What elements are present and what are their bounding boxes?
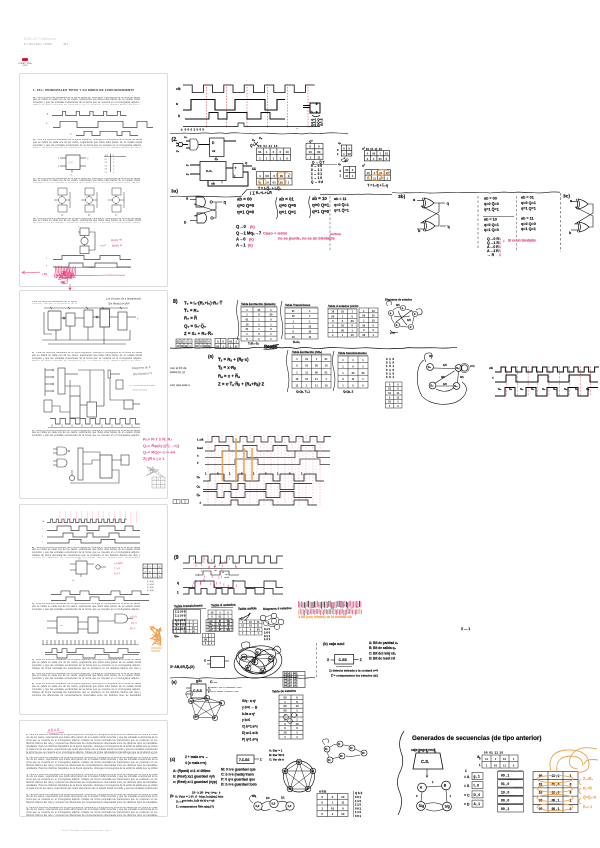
svg-text:01: 01: [503, 757, 507, 761]
svg-text:00: 00: [280, 174, 284, 178]
svg-text:0: 0: [222, 339, 224, 343]
svg-text:q=1 Q̅=1: q=1 Q̅=1: [484, 208, 499, 212]
svg-text:0: 0: [416, 794, 418, 798]
svg-text:T: T: [235, 166, 237, 170]
svg-text:1: 1: [246, 308, 248, 312]
svg-text:0/0: 0/0: [441, 375, 445, 379]
svg-text:10: 10: [249, 621, 252, 624]
svg-text:1: 1: [372, 333, 374, 337]
svg-text:C: Bit del reloj ck₁: C: Bit del reloj ck₁: [369, 651, 397, 655]
svg-text:0: 0: [309, 145, 311, 149]
svg-text:1: 1: [342, 314, 344, 318]
svg-text:1: 1: [242, 628, 244, 631]
svg-text:0: 0: [289, 472, 291, 476]
svg-text:3a): 3a): [171, 189, 178, 195]
svg-text:T̅ₐ = Rₐ + (R̅ᵦ·x): T̅ₐ = Rₐ + (R̅ᵦ·x): [217, 357, 249, 362]
svg-text:1: 1: [205, 634, 207, 638]
svg-text:10: 10: [292, 314, 295, 318]
svg-text:b: b: [178, 114, 180, 118]
svg-text:0: 0: [279, 150, 281, 154]
svg-text:10: 10: [325, 384, 328, 388]
svg-text:a: a: [413, 197, 416, 202]
svg-text:x₁: x₁: [252, 138, 256, 142]
svg-text:11: 11: [257, 625, 260, 628]
svg-text:S₀: S₀: [428, 365, 432, 369]
svg-text:00 , 1: 00 , 1: [501, 807, 509, 811]
svg-text:1: 1: [246, 332, 248, 336]
svg-text:→ R: → R: [487, 253, 495, 257]
svg-text:1/1: 1/1: [281, 796, 285, 800]
svg-text:0: 0: [342, 377, 344, 381]
svg-text:10: 10: [331, 310, 334, 314]
svg-text:Q̅=Q̅₀·R: Q̅=Q̅₀·R: [582, 796, 596, 800]
svg-text:M: 0 nºs guardael que: M: 0 nºs guardael que: [221, 768, 256, 772]
svg-text:S₃: S₃: [454, 384, 458, 388]
svg-text:a: a: [570, 199, 573, 203]
svg-text:0: 0: [241, 472, 243, 476]
svg-text:1: 1: [309, 309, 311, 313]
svg-text:S₂: S₂: [520, 387, 524, 391]
svg-text:1: 1: [386, 176, 388, 180]
svg-text:1: 1: [259, 174, 261, 178]
svg-text:11: 11: [503, 764, 506, 768]
svg-text:10: 10: [211, 611, 214, 614]
svg-text:1: 1: [479, 763, 481, 767]
svg-text:00: 00: [284, 704, 287, 708]
svg-text:1: 1: [259, 156, 261, 160]
svg-text:1/0: 1/0: [443, 382, 447, 386]
svg-text:1: 1: [362, 377, 364, 381]
svg-text:1: 1: [316, 357, 318, 361]
svg-text:1: 1: [277, 472, 279, 476]
svg-text:01: 01: [305, 377, 308, 381]
svg-text:1: 1: [219, 611, 221, 614]
svg-text:Σ: comparamos Rén q≥q₁(?): Σ: comparamos Rén q≥q₁(?): [176, 805, 214, 809]
svg-text:A→1: A→1: [236, 243, 246, 248]
svg-text:01: 01: [494, 764, 498, 768]
svg-text:10: 10: [296, 704, 299, 708]
svg-text:1: 1: [343, 152, 345, 156]
svg-text:0 1 0: 0 1 0: [386, 361, 394, 365]
svg-text:11: 11: [352, 377, 355, 381]
svg-text:01: 01: [196, 341, 199, 344]
svg-text:1: 1: [258, 337, 260, 341]
svg-text:1: 1: [325, 377, 327, 381]
svg-text:1 1 0: 1 1 0: [355, 803, 361, 807]
svg-text:1: 1: [205, 472, 207, 476]
svg-text:0 0 1: 0 0 1: [386, 375, 394, 379]
svg-text:1: 1: [309, 314, 311, 318]
svg-text:01: 01: [305, 364, 308, 368]
svg-text:Q → d d: Q → d d: [311, 180, 323, 184]
svg-text:1: 1: [250, 632, 252, 635]
svg-text:0: 0: [397, 404, 399, 408]
svg-text:T = I₀·q̅ + I̅₀·q: T = I₀·q̅ + I̅₀·q: [367, 184, 388, 188]
svg-text:1: 1: [352, 174, 354, 178]
svg-text:4 (o mala nºs): 4 (o mala nºs): [185, 761, 206, 765]
svg-text:11: 11: [397, 391, 400, 395]
svg-text:11: 11: [308, 335, 311, 339]
svg-text:0: 0: [397, 387, 399, 391]
svg-text:a: a: [176, 102, 178, 106]
svg-text:q=0 Q=0: q=0 Q=0: [237, 203, 255, 208]
svg-text:vertical.: vertical.: [330, 232, 342, 236]
svg-text:x=0: x=0: [390, 331, 395, 335]
svg-text:a bit (con retraso) de la entr: a bit (con retraso) de la entrada clk: [299, 615, 353, 619]
svg-text:0: 0: [362, 384, 364, 388]
svg-text:1: 1: [253, 472, 255, 476]
svg-text:Qᵦ₂: Qᵦ₂: [174, 634, 179, 638]
svg-text:Tabla Excitación (Estado): Tabla Excitación (Estado): [241, 302, 275, 306]
svg-text:D/g: D/g: [419, 804, 424, 808]
svg-text:0: 0: [389, 395, 391, 399]
svg-text:(6): (6): [208, 354, 214, 359]
svg-text:1: 1: [362, 364, 364, 368]
svg-text:(k): (k): [248, 243, 253, 248]
svg-text:0: 0: [284, 726, 286, 730]
svg-text:S₃: S₃: [542, 387, 546, 391]
svg-text:00: 00: [284, 695, 287, 699]
svg-text:00: 00: [362, 323, 365, 327]
svg-text:10: 10: [372, 309, 375, 313]
svg-text:1: 1: [273, 156, 275, 160]
svg-text:Qᵀ: Qᵀ: [309, 140, 313, 144]
svg-text:00: 00: [265, 174, 269, 178]
svg-text:0: 0: [318, 145, 320, 149]
svg-text:0/0: 0/0: [252, 794, 256, 798]
svg-text:clk: clk: [176, 87, 181, 91]
svg-text:00: 00: [362, 333, 365, 337]
svg-text:0: 0: [250, 628, 252, 631]
svg-text:01: 01: [388, 387, 391, 391]
svg-text:01: 01: [388, 391, 391, 395]
svg-text:1: 1: [270, 308, 272, 312]
svg-text:01: 01: [331, 807, 335, 811]
svg-text:(k): (k): [250, 224, 255, 229]
svg-text:10: 10: [308, 325, 311, 329]
svg-text:0: 0: [211, 616, 213, 619]
svg-text:1: 1: [292, 319, 294, 323]
svg-text:c: (Rest) x=1 guardael (vyp): c: (Rest) x=1 guardael (vyp): [173, 780, 217, 784]
svg-text:8): 8): [173, 299, 178, 305]
svg-text:01: 01: [305, 357, 308, 361]
svg-text:01 , 0: 01 , 0: [501, 782, 509, 786]
svg-text:00 , 1: 00 , 1: [552, 799, 560, 803]
svg-text:00: 00: [315, 370, 318, 374]
svg-text:1: 1: [185, 341, 187, 344]
svg-text:1: 1: [342, 364, 344, 368]
svg-text:1: 1: [321, 807, 323, 811]
svg-text:11: 11: [373, 176, 376, 180]
svg-text:t , 0: t , 0: [474, 784, 480, 788]
svg-text:11: 11: [485, 757, 488, 761]
svg-text:1-1 1: 1-1 1: [264, 637, 271, 641]
svg-text:Q₁: Q₁: [197, 475, 201, 479]
svg-text:B: Bit de salida q₀: B: Bit de salida q₀: [369, 646, 396, 650]
svg-text:11: 11: [345, 174, 348, 178]
svg-text:QₐQᵦ, Tₐ,1: QₐQᵦ, Tₐ,1: [296, 390, 310, 394]
svg-text:01: 01: [229, 339, 232, 343]
svg-text:Caso + lento: Caso + lento: [263, 231, 288, 236]
svg-text:x₁: x₁: [186, 163, 190, 167]
svg-text:G/q · a·q¹: G/q · a·q¹: [242, 699, 256, 703]
svg-text:q=0 Q=0: q=0 Q=0: [521, 222, 536, 226]
svg-text:1 0 1: 1 0 1: [386, 364, 394, 368]
svg-text:1: 1: [284, 700, 286, 704]
svg-text:1: 1: [363, 309, 365, 313]
svg-text:1/0: 1/0: [266, 796, 270, 800]
svg-text:(a): (a): [172, 680, 178, 685]
svg-text:caja negra next: caja negra next: [411, 748, 436, 752]
svg-text:10: 10: [350, 748, 353, 750]
svg-text:11: 11: [305, 370, 308, 374]
svg-text:C.SS: C.SS: [339, 658, 348, 662]
svg-text:q=0 Q=1: q=0 Q=1: [312, 203, 330, 208]
svg-text:C.S.S: C.S.S: [193, 689, 203, 693]
svg-text:0: 0: [321, 812, 323, 816]
svg-text:1/0: 1/0: [407, 318, 411, 322]
svg-text:R₀=R̅: R₀=R̅: [583, 786, 593, 790]
svg-text:1: 1: [258, 632, 260, 635]
svg-text:x: x: [204, 659, 206, 663]
svg-text:11: 11: [317, 155, 321, 159]
svg-text:01: 01: [241, 625, 244, 628]
svg-text:01: 01: [292, 309, 295, 313]
svg-text:Q: Q: [245, 161, 248, 165]
svg-text:2 + mala nºs →: 2 + mala nºs →: [185, 755, 208, 759]
svg-text:1: 1: [332, 328, 334, 332]
svg-text:d: d: [410, 325, 412, 329]
svg-text:ab = 10: ab = 10: [312, 196, 327, 201]
svg-text:1: 1: [495, 757, 497, 761]
svg-text:01: 01: [235, 344, 238, 348]
svg-text:10: 10: [372, 314, 375, 318]
svg-text:1: 1: [258, 322, 260, 326]
svg-text:t: 0 0 0 1 0 0 0: t: 0 0 0 1 0 0 0: [181, 128, 204, 132]
svg-text:1: 1: [342, 371, 344, 375]
svg-text:S₂: S₂: [430, 384, 434, 388]
svg-text:1: 1: [309, 155, 311, 159]
svg-text:0 1 0: 0 1 0: [386, 357, 394, 361]
svg-text:X — 1: X — 1: [461, 627, 470, 631]
svg-text:1: 1: [296, 357, 298, 361]
svg-text:10: 10: [351, 333, 354, 337]
svg-text:1: 1: [270, 337, 272, 341]
svg-text:0: 0: [372, 328, 374, 332]
svg-text:no se puede, no es un biestabl: no se puede, no es un biestable: [278, 237, 335, 241]
svg-text:1: 1: [266, 150, 268, 154]
svg-text:1: 1: [211, 641, 213, 645]
svg-text:1: 1: [352, 358, 354, 362]
svg-text:A→0: A→0: [236, 237, 246, 242]
svg-text:q=1 Q=1: q=1 Q=1: [279, 210, 297, 215]
svg-text:1: 1: [486, 764, 488, 768]
svg-text:11: 11: [315, 384, 318, 388]
svg-text:Rₐ = x + R̅ₐ: Rₐ = x + R̅ₐ: [218, 373, 240, 378]
svg-text:10: 10: [249, 625, 252, 628]
svg-text:0: 0: [340, 169, 342, 173]
svg-text:1: 1: [351, 310, 353, 314]
svg-text:A , 1: A , 1: [474, 802, 481, 806]
svg-text:qᵀ: qᵀ: [362, 164, 366, 168]
svg-text:Z = x·T̅ₐ·R̅ᵦ + (Rₐ+Rᵦ)·Z: Z = x·T̅ₐ·R̅ᵦ + (Rₐ+Rᵦ)·Z: [218, 382, 264, 387]
svg-text:1: 1: [397, 400, 399, 404]
svg-text:x: x: [197, 454, 199, 458]
svg-text:00: 00: [372, 152, 375, 156]
svg-text:1: 1: [246, 313, 248, 317]
svg-text:10: 10: [372, 318, 375, 322]
svg-text:00: 00: [362, 314, 365, 318]
svg-text:1,0: 1,0: [288, 804, 292, 808]
svg-text:1: 1: [306, 384, 308, 388]
svg-text:10: 10: [341, 812, 345, 816]
svg-text:I₀I₁: I₀I₁: [252, 167, 257, 171]
svg-text:C) b=1 a=c: C) b=1 a=c: [242, 725, 258, 729]
svg-text:1: 1: [332, 801, 334, 805]
svg-text:q=1 Q̅=1: q=1 Q̅=1: [334, 209, 349, 213]
svg-text:ab = 10: ab = 10: [484, 218, 497, 222]
svg-text:10: 10: [308, 330, 311, 334]
svg-text:q: q: [177, 581, 179, 585]
svg-text:1: 1: [279, 156, 281, 160]
svg-text:0: 0: [342, 807, 344, 811]
svg-text:(4): (4): [170, 757, 176, 762]
svg-text:clk: clk: [211, 182, 215, 186]
svg-text:z — ·· —— · —— ·· —: z — ·· —— · —— ·· —: [208, 690, 238, 694]
svg-text:0: 0: [258, 332, 260, 336]
svg-text:. .: . .: [296, 126, 299, 130]
svg-text:b: b: [569, 231, 572, 235]
svg-text:00 , 1: 00 , 1: [552, 774, 560, 778]
svg-text:0: 0: [296, 726, 298, 730]
svg-text:Reseo: Reseo: [264, 343, 278, 349]
svg-text:con una sola x: con una sola x: [170, 383, 190, 387]
svg-text:1: 1: [258, 318, 260, 322]
svg-text:1: 1: [235, 339, 237, 343]
svg-text:01: 01: [385, 152, 388, 156]
svg-text:ab = 01: ab = 01: [521, 196, 534, 200]
svg-text:10: 10: [341, 324, 344, 328]
svg-text:a: a: [402, 307, 404, 310]
svg-text:D: Bit de reset rst: D: Bit de reset rst: [369, 657, 395, 661]
svg-text:0 0 1: 0 0 1: [355, 795, 361, 799]
svg-text:10: 10: [295, 377, 298, 381]
svg-text:Z = S₀ + R₀·R̅₀: Z = S₀ + R₀·R̅₀: [184, 331, 213, 336]
svg-text:Q→0: Q→0: [236, 224, 246, 229]
svg-text:A: (Rpast) x=1 el último: A: (Rpast) x=1 el último: [173, 769, 210, 773]
svg-text:01: 01: [325, 357, 328, 361]
svg-text:b/g: b/g: [445, 805, 450, 809]
svg-text:b: (Rest) x≥1 guardael vyh: b: (Rest) x≥1 guardael vyh: [173, 774, 215, 778]
svg-text:D: b nºs guardael todo: D: b nºs guardael todo: [221, 783, 257, 787]
svg-text:10: 10: [246, 322, 249, 326]
svg-text:1: 1: [432, 780, 434, 784]
svg-text:01: 01: [388, 400, 391, 404]
svg-text:0,0: 0,0: [272, 802, 276, 806]
svg-text:d: d: [414, 312, 416, 316]
svg-text:00: 00: [348, 152, 352, 156]
svg-text:C.S.: C.S.: [421, 759, 429, 764]
svg-text:00: 00: [340, 756, 343, 758]
svg-text:ck: ck: [212, 149, 216, 153]
svg-text:00 01 11 10: 00 01 11 10: [258, 144, 278, 148]
svg-text:Tabla transic/estados: Tabla transic/estados: [338, 351, 367, 355]
svg-text:t_clk: t_clk: [197, 438, 204, 442]
svg-text:10: 10: [328, 760, 331, 762]
svg-text:1: 1: [309, 319, 311, 323]
svg-text:1-0 0: 1-0 0: [264, 630, 271, 634]
svg-text:11: 11: [257, 621, 260, 624]
svg-text:q=0 Q̅=0: q=0 Q̅=0: [484, 202, 499, 206]
svg-text:0-1 0: 0-1 0: [264, 627, 271, 631]
svg-text:1: 1: [389, 404, 391, 408]
svg-text:1: 1: [270, 322, 272, 326]
svg-text:11: 11: [177, 345, 180, 348]
svg-text:10: 10: [284, 731, 287, 735]
svg-text:D) a=1 a=b: D) a=1 a=b: [242, 731, 258, 735]
svg-text:g , 1: g , 1: [474, 775, 481, 779]
svg-text:T₀ = I₀·(R₁+I₀)·R₀·T̅: T₀ = I₀·(R₁+I₀)·R₀·T̅: [184, 301, 223, 306]
svg-text:10: 10: [341, 310, 344, 314]
svg-text:(k): (k): [249, 237, 254, 242]
svg-text:= A: = A: [464, 775, 470, 779]
svg-text:11: 11: [341, 801, 345, 805]
svg-text:T̅ᵦ = x·Rᵦ: T̅ᵦ = x·Rᵦ: [217, 365, 236, 370]
svg-text:Q→1 Mq₁→7: Q→1 Mq₁→7: [236, 231, 262, 236]
svg-text:0/0: 0/0: [429, 354, 433, 358]
svg-text:Q₀ = S₀·Q̅₀: Q₀ = S₀·Q̅₀: [184, 323, 206, 328]
svg-text:00: 00: [317, 150, 321, 154]
svg-text:1: 1: [379, 152, 381, 156]
svg-text:10: 10: [325, 364, 328, 368]
svg-text:01: 01: [219, 616, 222, 619]
svg-text:01: 01: [325, 749, 328, 751]
svg-text:Q₂: Q₂: [197, 485, 201, 489]
svg-text:0: 0: [321, 801, 323, 805]
svg-text:1: 1: [296, 717, 298, 721]
svg-text:10: 10: [292, 335, 295, 339]
svg-text:0: 0: [343, 146, 345, 150]
svg-text:1: 1: [284, 735, 286, 739]
svg-text:Tabla Excitación (SRₐ): Tabla Excitación (SRₐ): [292, 350, 322, 354]
svg-text:q₁: q₁: [338, 162, 342, 166]
svg-text:Q̅₃: Q̅₃: [197, 493, 201, 497]
svg-text:0: 0: [570, 790, 572, 794]
svg-text:0: 0: [292, 330, 294, 334]
svg-text:1: 1: [342, 333, 344, 337]
svg-text:clk: clk: [489, 366, 493, 370]
svg-text:0: 0: [286, 156, 288, 160]
svg-text:01: 01: [246, 318, 249, 322]
svg-text:10: 10: [309, 150, 313, 154]
svg-text:A R B: A R B: [319, 790, 326, 794]
svg-text:= S: = S: [464, 784, 470, 788]
svg-text:0-1 1: 0-1 1: [264, 634, 271, 638]
svg-text:Diagrama d estados: Diagrama d estados: [263, 606, 292, 611]
svg-text:0: 0: [265, 472, 267, 476]
svg-text:q=0 Q=1: q=0 Q=1: [484, 223, 499, 227]
svg-text:00 01 11 10: 00 01 11 10: [484, 751, 504, 755]
svg-text:0: 0: [352, 168, 354, 172]
svg-text:load: load: [197, 446, 203, 450]
svg-text:= D: = D: [464, 803, 470, 807]
svg-text:q₀: q₀: [338, 141, 342, 145]
svg-text:(b: (b: [170, 793, 174, 798]
svg-text:Generados de secuencias (: Generados de secuencias (de tipo anterio…: [412, 735, 541, 742]
svg-text:01: 01: [246, 327, 249, 331]
svg-text:1: 1: [337, 152, 339, 156]
svg-text:0: 0: [386, 157, 388, 161]
